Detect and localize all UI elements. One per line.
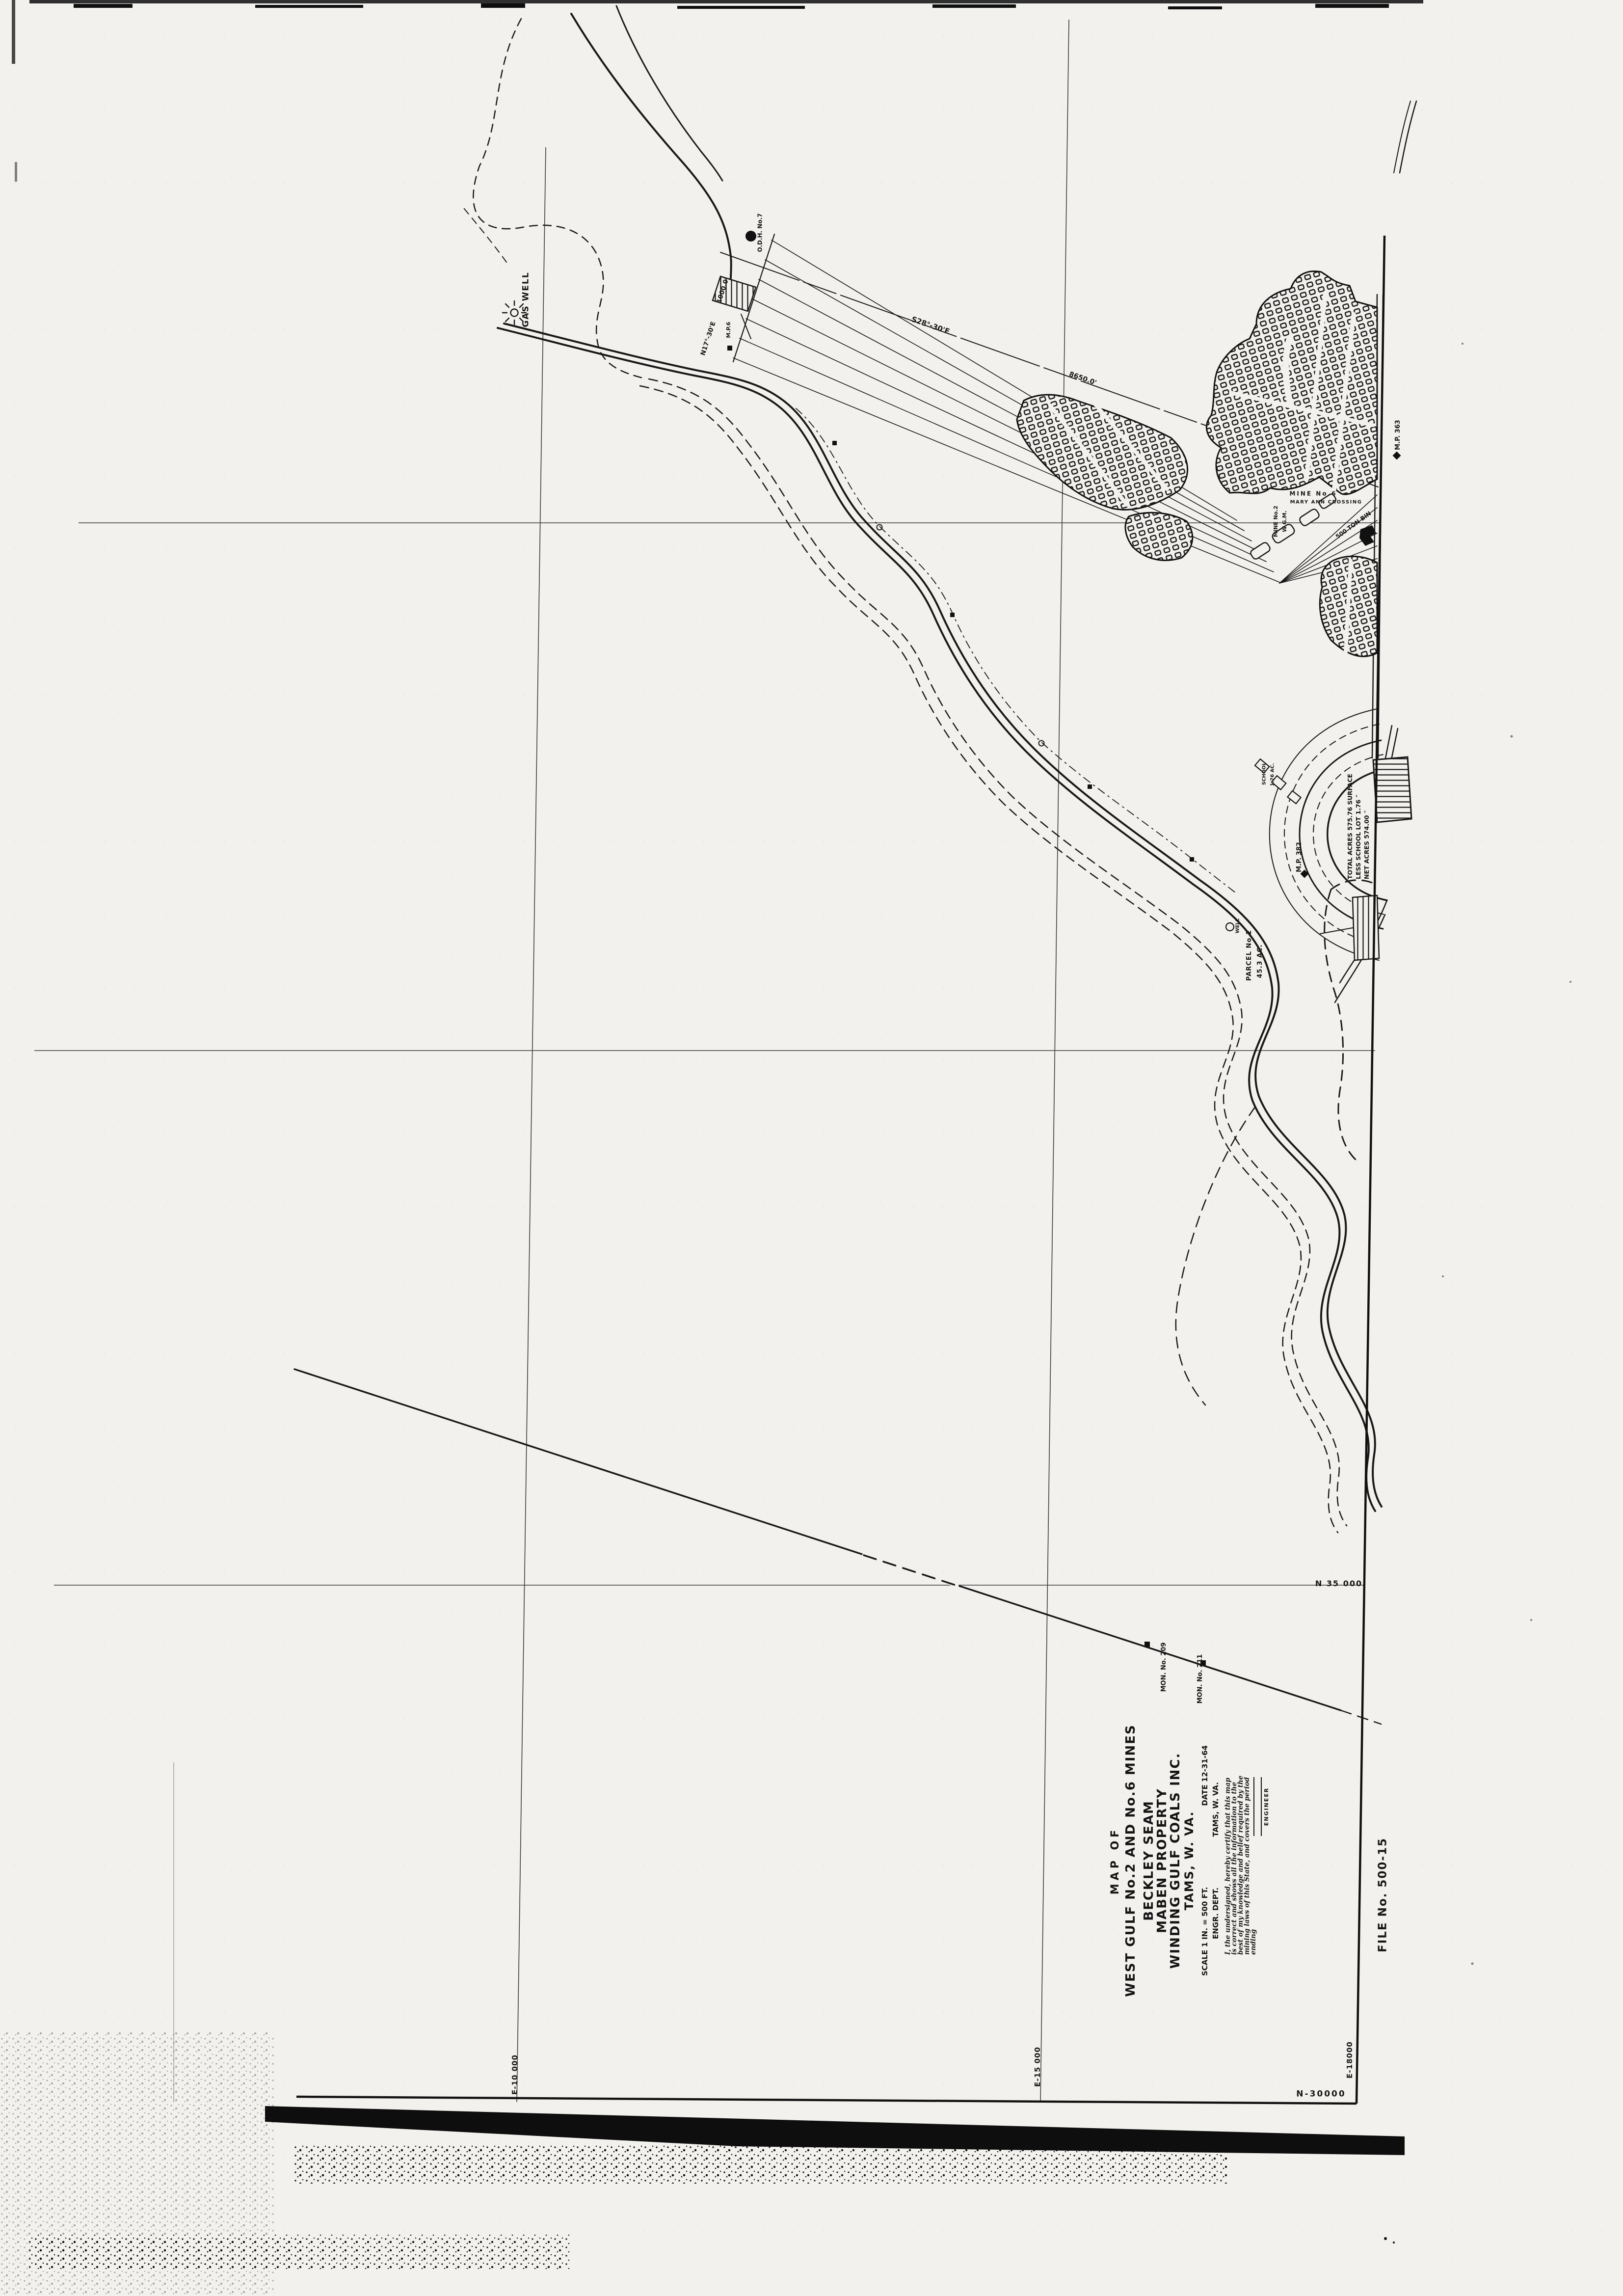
acreage-total: TOTAL ACRES 575.76 SURFACE	[1346, 776, 1354, 879]
parcel-area-label: 45.3 AC.	[1257, 944, 1264, 978]
monument-209-label: MON. No. 209	[1161, 1643, 1168, 1692]
signature-line	[1256, 1777, 1262, 1836]
title-seam: BECKLEY SEAM	[1143, 1723, 1155, 1998]
signature-area: ENGINEER	[1249, 1777, 1270, 1836]
plant-building	[1299, 508, 1320, 527]
mine-no6-label: MINE No.6	[1289, 490, 1337, 497]
gas-well-label: GAS WELL	[522, 271, 531, 327]
wgm-label: W.G.M.	[1282, 511, 1288, 532]
file-number: FILE No. 500-15	[1377, 1837, 1389, 1952]
title-dept-row: ENGR. DEPT. TAMS, W. VA.	[1211, 1782, 1220, 1939]
title-location: TAMS, W. VA.	[1183, 1723, 1196, 1998]
signature-line	[1249, 1777, 1254, 1836]
mary-ann-crossing-label: MARY ANN CROSSING	[1290, 500, 1362, 505]
creek-and-roads	[461, 6, 1382, 1533]
dept-label: ENGR. DEPT.	[1211, 1888, 1220, 1939]
title-block: MAP OF WEST GULF No.2 AND No.6 MINES BEC…	[1109, 1723, 1276, 1998]
scanned-mine-map-sheet: GAS WELL O.D.H. No.7 N17°-30'E 1000.0' M…	[0, 0, 1623, 2296]
milepost-363-marker	[1393, 452, 1401, 460]
title-property: MABEN PROPERTY	[1156, 1723, 1169, 1998]
title-scale-date-row: SCALE 1 IN. = 500 FT. DATE 12-31-64	[1200, 1745, 1209, 1976]
grid-label-n35000: N 35 000	[1315, 1579, 1362, 1588]
title-mine-name: WEST GULF No.2 AND No.6 MINES	[1124, 1723, 1137, 1998]
acreage-summary: TOTAL ACRES 575.76 SURFACE LESS SCHOOL L…	[1346, 776, 1373, 879]
milepost-6-label: M.P.6	[726, 322, 732, 338]
grid-label-e18000: E-18000	[1346, 2041, 1354, 2079]
grid-label-e10000: E-10 000	[511, 2054, 519, 2095]
dept-location: TAMS, W. VA.	[1211, 1782, 1220, 1837]
acreage-less-school: LESS SCHOOL LOT 1.76 ″	[1354, 776, 1362, 879]
parcel-label: PARCEL No.2	[1246, 930, 1253, 981]
plant-building	[1250, 541, 1271, 561]
school-label: SCHOOL	[1262, 762, 1267, 785]
well-label: WELL	[1235, 918, 1241, 934]
mine-no2-label: MINE No.2	[1273, 506, 1279, 537]
drill-hole-marker	[745, 231, 756, 242]
old-well-symbol	[1226, 923, 1234, 931]
grid-label-e15000: E-15 000	[1034, 2047, 1042, 2087]
milepost-6-marker	[727, 346, 732, 351]
scale-label: SCALE 1 IN. = 500 FT.	[1200, 1887, 1209, 1976]
grid-label-n30000: N-30000	[1296, 2090, 1346, 2099]
monument-211-label: MON. No. 211	[1197, 1654, 1204, 1704]
title-map-of: MAP OF	[1109, 1723, 1121, 1998]
engineer-label: ENGINEER	[1263, 1777, 1270, 1836]
tipple-structure	[1373, 757, 1411, 822]
bin-structure	[1359, 525, 1376, 546]
property-boundary	[294, 441, 1381, 1724]
drill-hole-label: O.D.H. No.7	[757, 214, 763, 252]
date-label: DATE 12-31-64	[1200, 1745, 1209, 1806]
acreage-net: NET ACRES 574.00 ″	[1362, 776, 1371, 879]
school-area-label: 1.76 AC.	[1270, 763, 1276, 786]
milepost-382-label: M.P. 382	[1296, 842, 1303, 872]
title-company: WINDING GULF COALS INC.	[1169, 1723, 1182, 1998]
workings-mine-no6	[1206, 271, 1377, 494]
milepost-363-label: M.P. 363	[1395, 420, 1402, 450]
